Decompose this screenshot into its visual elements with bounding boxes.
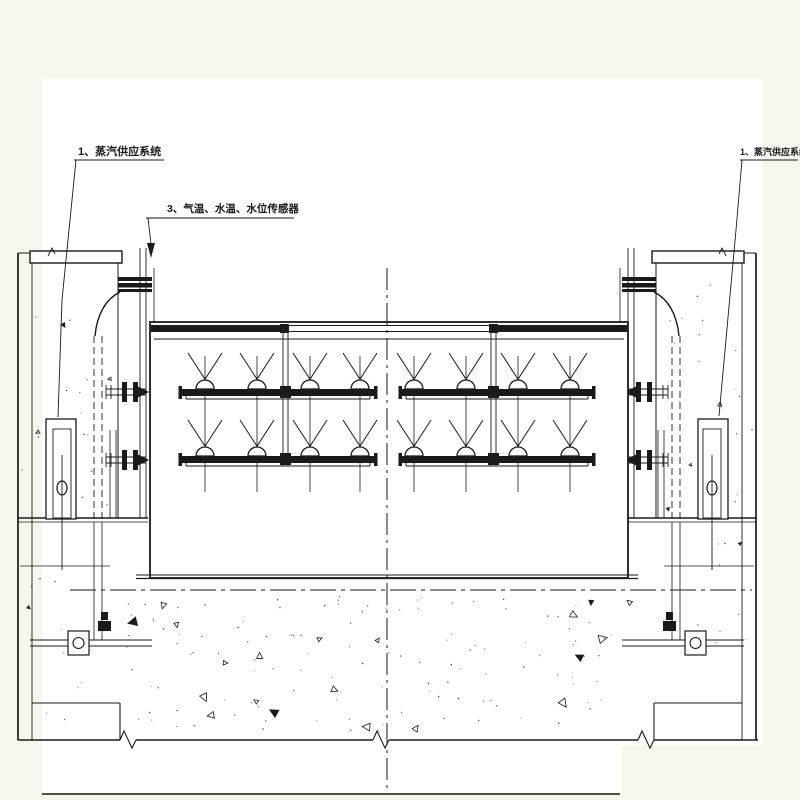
label-steam-supply-left: 1、蒸汽供应系统 xyxy=(78,144,161,158)
label-steam-supply-right: 1、蒸汽供应系统 xyxy=(740,146,800,157)
engineering-section-drawing: 1、蒸汽供应系统 3、气温、水温、水位传感器 1、蒸汽供应系统 xyxy=(0,0,800,800)
steam-pipe-entry xyxy=(118,277,152,292)
drawing-canvas: 1、蒸汽供应系统 3、气温、水温、水位传感器 1、蒸汽供应系统 xyxy=(0,0,800,800)
label-sensors: 3、气温、水温、水位传感器 xyxy=(167,202,299,215)
pier-cap-beam xyxy=(30,251,122,263)
